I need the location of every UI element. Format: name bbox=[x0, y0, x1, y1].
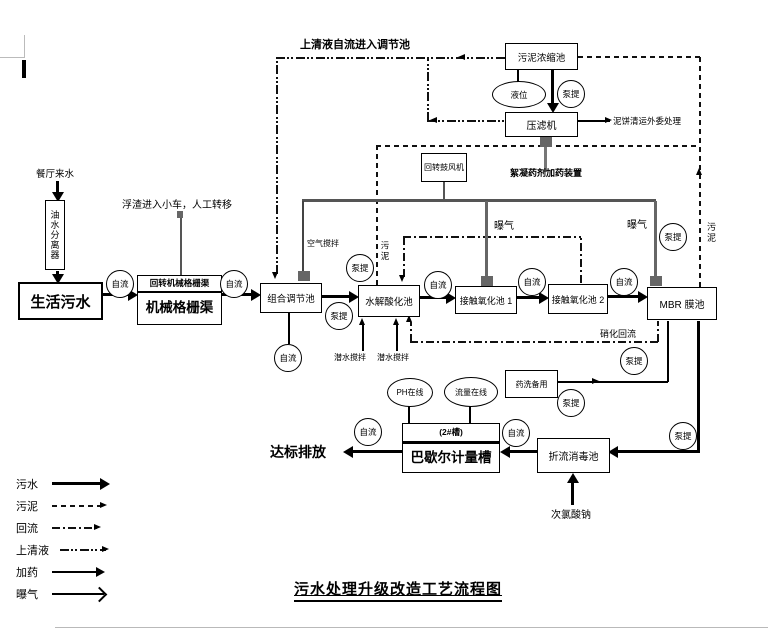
air-mixing-label: 空气搅拌 bbox=[307, 238, 339, 249]
sludge-label: 污泥 bbox=[705, 222, 718, 244]
grille-label: 机械格栅渠 bbox=[146, 293, 214, 323]
parshall-header-label: (2#槽) bbox=[403, 424, 499, 444]
page-bottom-rule bbox=[55, 627, 768, 628]
gravity-circle: 自流 bbox=[518, 268, 546, 296]
sludge-thickener-label: 污泥浓缩池 bbox=[518, 50, 566, 64]
box-regulating-tank: 组合调节池 bbox=[260, 283, 322, 313]
level-gauge-label: 液位 bbox=[510, 89, 527, 101]
legend-line-recirculation bbox=[52, 527, 98, 529]
baffled-tank-label: 折流消毒池 bbox=[549, 448, 599, 463]
legend-line-supernatant bbox=[60, 549, 106, 551]
canteen-inflow-label: 餐厅来水 bbox=[36, 166, 74, 180]
air-mixing-drop bbox=[302, 201, 304, 272]
cursor-mark bbox=[22, 60, 26, 78]
gravity-label: 自流 bbox=[523, 276, 540, 288]
page-margin-mark bbox=[0, 57, 25, 58]
aeration-label: 曝气 bbox=[494, 217, 514, 232]
grille-header-label: 回转机械格栅渠 bbox=[138, 276, 221, 293]
submersible-mixer-label: 潜水搅拌 bbox=[334, 352, 366, 363]
diagram-title: 污水处理升级改造工艺流程图 bbox=[294, 578, 502, 602]
supernatant-arrowhead bbox=[272, 272, 278, 279]
scum-note: 浮渣进入小车，人工转移 bbox=[122, 196, 232, 211]
recirculation-line bbox=[403, 237, 405, 277]
pump-circle: 泵提 bbox=[557, 80, 585, 108]
sludge-line bbox=[376, 145, 700, 147]
pump-circle: 泵提 bbox=[557, 389, 585, 417]
parshall-flume-label: 巴歇尔计量槽 bbox=[411, 444, 492, 472]
pump-circle: 泵提 bbox=[620, 347, 648, 375]
mixer-arrow bbox=[362, 323, 364, 351]
nitrification-return-line bbox=[410, 341, 658, 343]
filtrate-line bbox=[427, 120, 505, 122]
box-contact-tank-2: 接触氧化池 2 bbox=[548, 284, 608, 314]
sludge-line bbox=[376, 146, 378, 285]
gravity-label: 自流 bbox=[279, 352, 296, 364]
process-flow-diagram: 上清液自流进入调节池 污泥 污泥 硝化回流 空气搅拌 曝气 曝气 餐厅来水 油水… bbox=[0, 0, 768, 634]
chem-wash-arrowhead bbox=[592, 378, 599, 384]
legend-label-sewage: 污水 bbox=[16, 476, 38, 492]
aeration-label: 曝气 bbox=[627, 216, 647, 231]
legend-arrowhead bbox=[96, 567, 105, 577]
flow-gauge: 流量在线 bbox=[444, 377, 498, 407]
pump-label: 泵提 bbox=[674, 430, 691, 442]
filtrate-line bbox=[427, 58, 429, 121]
box-oil-separator: 油水分离器 bbox=[45, 200, 65, 270]
aeration-header-line bbox=[302, 199, 656, 202]
box-mechanical-grille: 回转机械格栅渠 机械格栅渠 bbox=[137, 275, 222, 325]
chem-wash-line bbox=[667, 321, 669, 382]
pump-label: 泵提 bbox=[562, 397, 579, 409]
box-mbr-tank: MBR 膜池 bbox=[647, 287, 717, 320]
nitrification-return-label: 硝化回流 bbox=[600, 327, 636, 340]
discharge-arrowhead bbox=[343, 446, 353, 458]
discharge-flow bbox=[347, 450, 402, 453]
gravity-circle: 自流 bbox=[424, 271, 452, 299]
level-gauge: 液位 bbox=[492, 81, 546, 108]
aeration-drop-1 bbox=[485, 201, 488, 278]
chem-wash-line bbox=[558, 381, 668, 383]
regulating-tank-label: 组合调节池 bbox=[267, 291, 315, 305]
ph-gauge-line bbox=[408, 405, 410, 423]
legend-line-sludge bbox=[52, 505, 104, 507]
legend-arrowhead bbox=[100, 502, 107, 508]
legend-label-recirculation: 回流 bbox=[16, 520, 38, 536]
permeate-flow bbox=[697, 321, 700, 452]
gravity-circle: 自流 bbox=[220, 270, 248, 298]
ph-gauge: PH在线 bbox=[387, 378, 433, 407]
oil-separator-label: 油水分离器 bbox=[49, 210, 62, 260]
supernatant-arrowhead bbox=[458, 54, 465, 60]
diagram-title-text: 污水处理升级改造工艺流程图 bbox=[294, 581, 502, 598]
aeration-arrowhead bbox=[650, 276, 662, 286]
contact-tank-2-label: 接触氧化池 2 bbox=[552, 293, 605, 306]
permeate-flow bbox=[612, 450, 700, 453]
box-domestic-sewage: 生活污水 bbox=[18, 282, 103, 320]
hypochlorite-arrowhead bbox=[567, 473, 579, 483]
filtrate-arrowhead bbox=[430, 117, 437, 123]
box-baffled-tank: 折流消毒池 bbox=[537, 438, 610, 473]
aeration-arrowhead bbox=[481, 276, 493, 286]
gravity-circle: 自流 bbox=[274, 344, 302, 372]
mixer-arrowhead bbox=[359, 318, 365, 325]
legend-arrowhead bbox=[102, 546, 109, 552]
supernatant-line bbox=[276, 58, 278, 274]
legend-label-aeration: 曝气 bbox=[16, 586, 38, 602]
legend-line-sewage bbox=[52, 482, 106, 485]
pump-circle: 泵提 bbox=[325, 302, 353, 330]
gravity-label: 自流 bbox=[359, 426, 376, 438]
box-parshall-flume: (2#槽) 巴歇尔计量槽 bbox=[402, 423, 500, 473]
nitrification-return-line bbox=[657, 321, 659, 342]
blower-label: 回转鼓风机 bbox=[424, 162, 464, 173]
pump-label: 泵提 bbox=[351, 262, 368, 274]
gravity-label: 自流 bbox=[111, 278, 128, 290]
box-hydrolysis-tank: 水解酸化池 bbox=[358, 285, 420, 317]
box-sludge-thickener: 污泥浓缩池 bbox=[505, 43, 578, 70]
flocculant-arrowhead bbox=[540, 137, 552, 147]
sludge-arrowhead bbox=[696, 168, 702, 175]
ph-gauge-label: PH在线 bbox=[396, 387, 423, 398]
page-margin-mark bbox=[24, 35, 25, 58]
gravity-label: 自流 bbox=[507, 427, 524, 439]
nitrification-return-line bbox=[410, 322, 412, 342]
chem-wash-label: 药洗备用 bbox=[516, 379, 548, 390]
mud-cake-arrowhead bbox=[605, 117, 612, 123]
regulating-drain-line bbox=[288, 313, 290, 344]
pump-label: 泵提 bbox=[625, 355, 642, 367]
pump-label: 泵提 bbox=[330, 310, 347, 322]
thickener-to-press-arrow bbox=[551, 70, 554, 106]
domestic-sewage-label: 生活污水 bbox=[30, 291, 90, 312]
contact-tank-1-label: 接触氧化池 1 bbox=[460, 294, 513, 307]
flow-gauge-label: 流量在线 bbox=[455, 387, 487, 398]
legend-label-dosing: 加药 bbox=[16, 564, 38, 580]
gravity-circle: 自流 bbox=[610, 268, 638, 296]
sludge-label: 污泥 bbox=[379, 241, 391, 262]
gravity-circle: 自流 bbox=[106, 270, 134, 298]
filter-press-label: 压滤机 bbox=[527, 117, 557, 132]
pump-circle: 泵提 bbox=[669, 422, 697, 450]
submersible-mixer-label: 潜水搅拌 bbox=[377, 352, 409, 363]
aeration-drop-2 bbox=[654, 201, 657, 278]
gravity-circle: 自流 bbox=[502, 419, 530, 447]
recirculation-arrowhead bbox=[399, 275, 405, 282]
mixer-arrow bbox=[396, 323, 398, 351]
flocculant-note: 絮凝药剂加药装置 bbox=[510, 166, 582, 179]
mbr-tank-label: MBR 膜池 bbox=[660, 296, 705, 311]
pump-circle: 泵提 bbox=[659, 223, 687, 251]
sodium-hypochlorite-label: 次氯酸钠 bbox=[551, 506, 591, 521]
gravity-label: 自流 bbox=[225, 278, 242, 290]
legend-open-arrowhead bbox=[92, 587, 108, 603]
box-contact-tank-1: 接触氧化池 1 bbox=[455, 286, 517, 314]
hydrolysis-tank-label: 水解酸化池 bbox=[365, 294, 413, 308]
pump-circle: 泵提 bbox=[346, 254, 374, 282]
supernatant-line bbox=[276, 57, 505, 59]
gravity-label: 自流 bbox=[429, 279, 446, 291]
legend-label-sludge: 污泥 bbox=[16, 498, 38, 514]
box-blower: 回转鼓风机 bbox=[421, 153, 467, 182]
scum-arrow bbox=[180, 216, 182, 275]
mud-cake-note: 泥饼清运外委处理 bbox=[613, 115, 681, 127]
recirculation-line bbox=[403, 236, 581, 238]
flow-gauge-line bbox=[469, 405, 471, 423]
air-mixing-arrowhead bbox=[298, 271, 310, 281]
supernatant-note: 上清液自流进入调节池 bbox=[300, 36, 410, 52]
mixer-arrowhead bbox=[393, 318, 399, 325]
pump-label: 泵提 bbox=[664, 231, 681, 243]
recirculation-line bbox=[580, 237, 582, 283]
sludge-line bbox=[578, 56, 700, 58]
disinfect-to-flume-arrowhead bbox=[500, 446, 510, 458]
legend-line-dosing bbox=[52, 571, 102, 573]
legend-label-supernatant: 上清液 bbox=[16, 542, 49, 558]
discharge-label: 达标排放 bbox=[270, 442, 326, 462]
gravity-circle: 自流 bbox=[354, 418, 382, 446]
pump-label: 泵提 bbox=[562, 88, 579, 100]
box-chem-wash: 药洗备用 bbox=[505, 370, 558, 398]
scum-arrowhead bbox=[177, 211, 183, 218]
legend-arrowhead bbox=[100, 478, 110, 490]
gravity-label: 自流 bbox=[615, 276, 632, 288]
legend-arrowhead bbox=[94, 524, 101, 530]
blower-line bbox=[443, 182, 445, 200]
box-filter-press: 压滤机 bbox=[505, 112, 578, 137]
